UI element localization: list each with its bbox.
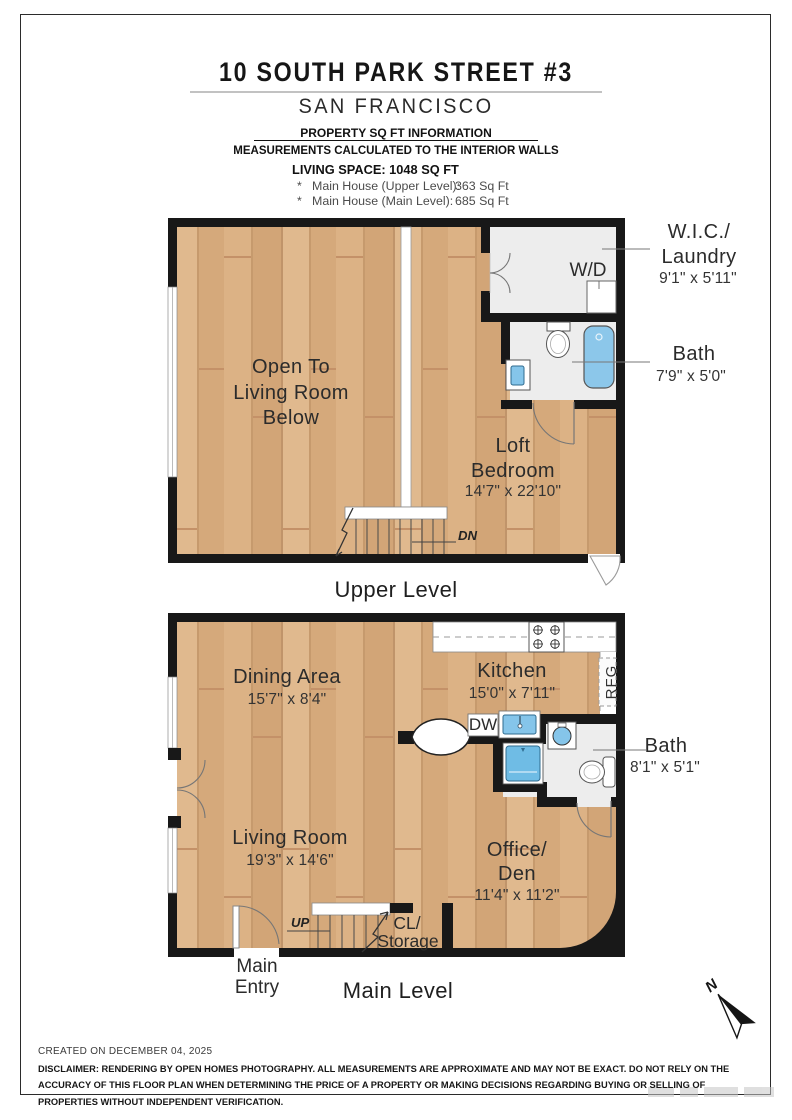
upper-bath-sink-icon xyxy=(506,360,530,390)
upper-bath-label: Bath 7'9" x 5'0" xyxy=(656,343,726,385)
closet-wall xyxy=(390,903,413,913)
kitchen-sink-icon xyxy=(499,711,540,738)
svg-text:CL/: CL/ xyxy=(393,913,420,933)
rfg-label: RFG xyxy=(603,665,620,700)
wd-label: W/D xyxy=(570,260,607,281)
svg-text:Den: Den xyxy=(498,863,536,885)
kitchen-label: Kitchen 15'0" x 7'11" xyxy=(469,660,555,702)
main-bath-door-gap xyxy=(577,797,611,807)
upper-level-caption: Upper Level xyxy=(334,577,457,602)
disclaimer-text: DISCLAIMER: RENDERING BY OPEN HOMES PHOT… xyxy=(38,1061,760,1110)
svg-text:8'1" x 5'1": 8'1" x 5'1" xyxy=(630,759,700,776)
svg-text:Office/: Office/ xyxy=(487,839,547,861)
svg-text:7'9" x 5'0": 7'9" x 5'0" xyxy=(656,368,726,385)
svg-text:Bedroom: Bedroom xyxy=(471,460,555,482)
washer-dryer-icon xyxy=(587,281,616,313)
svg-text:11'4" x 11'2": 11'4" x 11'2" xyxy=(474,887,559,904)
shower-icon xyxy=(503,743,543,784)
toilet-icon xyxy=(547,322,571,358)
dining-area-label: Dining Area 15'7" x 8'4" xyxy=(233,666,341,708)
svg-text:15'0" x 7'11": 15'0" x 7'11" xyxy=(469,685,555,702)
svg-text:9'1" x 5'11": 9'1" x 5'11" xyxy=(659,270,737,287)
svg-text:Open To: Open To xyxy=(252,356,330,378)
main-entry-label: Main Entry xyxy=(235,956,280,998)
main-left-window-lower xyxy=(168,828,177,893)
up-label: UP xyxy=(291,915,310,930)
svg-text:W.I.C./: W.I.C./ xyxy=(668,221,731,243)
living-room-label: Living Room 19'3" x 14'6" xyxy=(232,827,348,869)
wic-laundry-label: W.I.C./ Laundry 9'1" x 5'11" xyxy=(659,221,737,287)
svg-text:Living Room: Living Room xyxy=(233,382,349,404)
main-bath-sink-icon xyxy=(548,722,576,749)
svg-text:19'3" x 14'6": 19'3" x 14'6" xyxy=(246,852,334,869)
main-bath-label: Bath 8'1" x 5'1" xyxy=(630,735,700,776)
svg-text:Living Room: Living Room xyxy=(232,827,348,849)
svg-text:15'7" x 8'4": 15'7" x 8'4" xyxy=(248,691,327,708)
dn-label: DN xyxy=(458,528,478,543)
closet-wall-stub xyxy=(442,903,453,948)
loft-railing xyxy=(401,227,411,507)
svg-text:14'7" x 22'10": 14'7" x 22'10" xyxy=(465,483,561,500)
upper-level-plan: W/D xyxy=(168,218,737,602)
svg-text:Bath: Bath xyxy=(645,735,688,757)
north-arrow-icon: N xyxy=(697,972,756,1038)
wall-stub xyxy=(168,816,181,828)
stove-icon xyxy=(529,622,564,652)
svg-text:Kitchen: Kitchen xyxy=(477,660,547,682)
dw-label: DW xyxy=(469,715,497,734)
svg-text:Dining Area: Dining Area xyxy=(233,666,341,688)
svg-text:Main: Main xyxy=(236,956,277,977)
main-level-plan: RFG DW xyxy=(168,613,700,1003)
wall-stub xyxy=(168,748,181,760)
svg-text:Storage: Storage xyxy=(377,931,438,951)
floor-plan-canvas: W/D xyxy=(0,0,792,1120)
main-level-caption: Main Level xyxy=(343,978,453,1003)
created-date: CREATED ON DECEMBER 04, 2025 xyxy=(38,1046,212,1057)
svg-text:Loft: Loft xyxy=(496,435,531,457)
north-label: N xyxy=(702,975,722,996)
bathtub-icon xyxy=(584,326,614,388)
floor-plan-page: 10 SOUTH PARK STREET #3 SAN FRANCISCO PR… xyxy=(0,0,792,1120)
column-lens xyxy=(412,719,470,755)
svg-text:Below: Below xyxy=(263,407,320,429)
upper-exterior-door-icon xyxy=(588,554,620,585)
main-left-window-upper xyxy=(168,677,177,748)
upper-left-window xyxy=(168,287,177,477)
svg-text:Laundry: Laundry xyxy=(661,246,736,268)
svg-text:Entry: Entry xyxy=(235,977,280,998)
svg-text:Bath: Bath xyxy=(673,343,716,365)
